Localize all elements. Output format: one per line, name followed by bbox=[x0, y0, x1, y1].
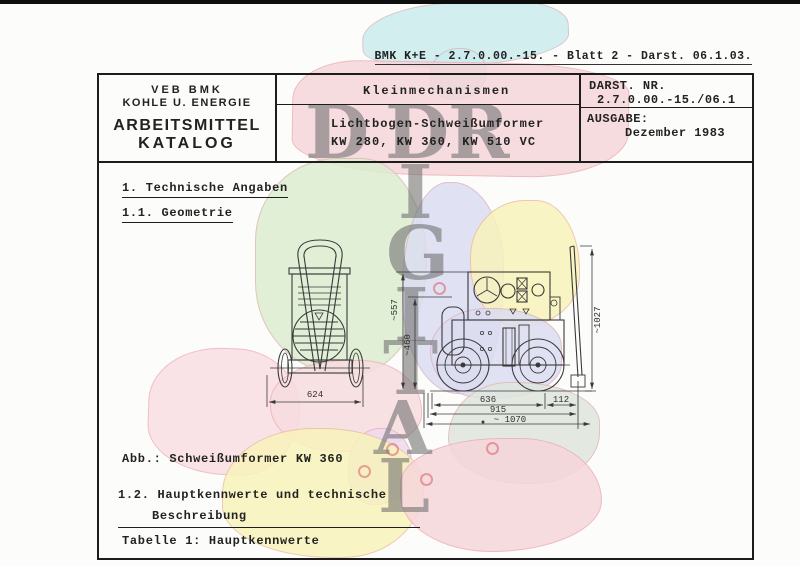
darst-value: 2.7.0.00.-15./06.1 bbox=[589, 93, 752, 107]
dim-label-height-body: ~460 bbox=[403, 334, 413, 356]
section-heading-1-2-underline bbox=[118, 527, 420, 528]
section-heading-1-2-line2: Beschreibung bbox=[152, 509, 247, 523]
section-heading-1-2-line1: 1.2. Hauptkennwerte und technische bbox=[118, 488, 387, 502]
ausgabe-value: Dezember 1983 bbox=[587, 126, 752, 140]
product-category: Kleinmechanismen bbox=[277, 75, 579, 105]
header-cell-meta: DARST. NR. 2.7.0.00.-15./06.1 AUSGABE: D… bbox=[581, 75, 752, 161]
section-heading-1-1: 1.1. Geometrie bbox=[122, 206, 233, 220]
product-title: Lichtbogen-Schweißumformer KW 280, KW 36… bbox=[277, 105, 579, 151]
side-view-welding-converter bbox=[430, 246, 592, 391]
dim-label-side-overall: ~ 1070 bbox=[494, 415, 526, 425]
header-cell-organisation: VEB BMK KOHLE U. ENERGIE ARBEITSMITTEL K… bbox=[99, 75, 277, 161]
dim-label-height-overall: ~557 bbox=[390, 299, 400, 321]
document-reference-line: BMK K+E - 2.7.0.00.-15. - Blatt 2 - Dars… bbox=[375, 50, 752, 65]
section-heading-1: 1. Technische Angaben bbox=[122, 181, 288, 195]
org-name-line2: KOHLE U. ENERGIE bbox=[99, 97, 275, 109]
front-view-welding-converter bbox=[270, 240, 370, 387]
section-heading-1-1-text: 1.1. Geometrie bbox=[122, 206, 233, 223]
dim-label-side-rear: 112 bbox=[553, 395, 569, 405]
scanned-catalog-page: D D R I G I T A L BMK K+E - 2.7.0.00.-15… bbox=[0, 0, 800, 566]
product-title-line1: Lichtbogen-Schweißumformer bbox=[331, 115, 579, 133]
darst-block: DARST. NR. 2.7.0.00.-15./06.1 bbox=[581, 75, 752, 108]
table-caption: Tabelle 1: Hauptkennwerte bbox=[122, 534, 320, 548]
darst-label: DARST. NR. bbox=[589, 79, 752, 93]
org-name-line1: VEB BMK bbox=[99, 84, 275, 96]
figure-caption: Abb.: Schweißumformer KW 360 bbox=[122, 452, 343, 466]
dim-label-side-frame: 915 bbox=[490, 405, 506, 415]
ausgabe-label: AUSGABE: bbox=[587, 112, 752, 126]
dimension-heights bbox=[396, 246, 596, 391]
ausgabe-block: AUSGABE: Dezember 1983 bbox=[581, 108, 752, 140]
technical-drawing: 624 bbox=[240, 225, 620, 440]
scan-edge-top bbox=[0, 0, 800, 4]
dim-label-front-width: 624 bbox=[307, 390, 323, 400]
product-title-line2: KW 280, KW 360, KW 510 VC bbox=[331, 133, 579, 151]
header-cell-product: Kleinmechanismen Lichtbogen-Schweißumfor… bbox=[277, 75, 581, 161]
dim-label-side-body: 636 bbox=[480, 395, 496, 405]
catalog-title-line2: KATALOG bbox=[99, 135, 275, 153]
section-heading-1-text: 1. Technische Angaben bbox=[122, 181, 288, 198]
catalog-title-line1: ARBEITSMITTEL bbox=[99, 117, 275, 135]
dim-label-height-handle: ~1027 bbox=[593, 306, 603, 333]
header-table: VEB BMK KOHLE U. ENERGIE ARBEITSMITTEL K… bbox=[99, 75, 752, 163]
